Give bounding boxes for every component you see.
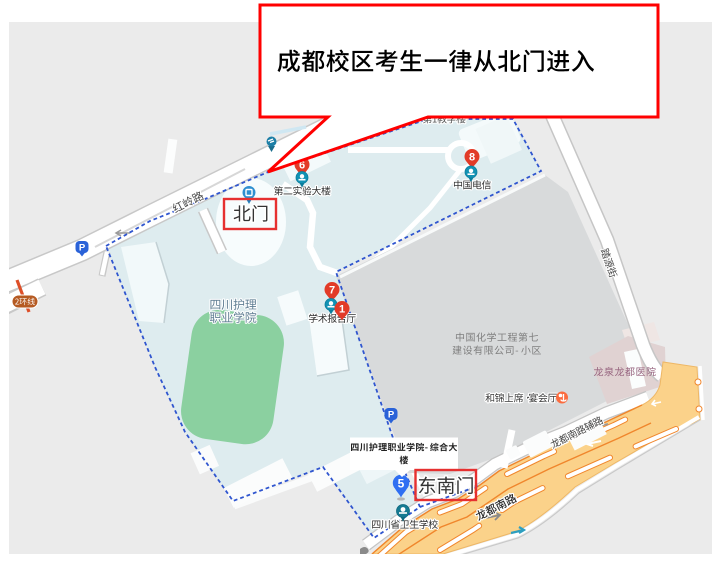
svg-text:7: 7	[329, 285, 335, 297]
svg-text:P: P	[79, 243, 86, 254]
svg-text:5: 5	[398, 477, 405, 491]
svg-text:P: P	[388, 410, 395, 421]
svg-text:1: 1	[339, 304, 345, 316]
svg-text:8: 8	[469, 152, 475, 164]
